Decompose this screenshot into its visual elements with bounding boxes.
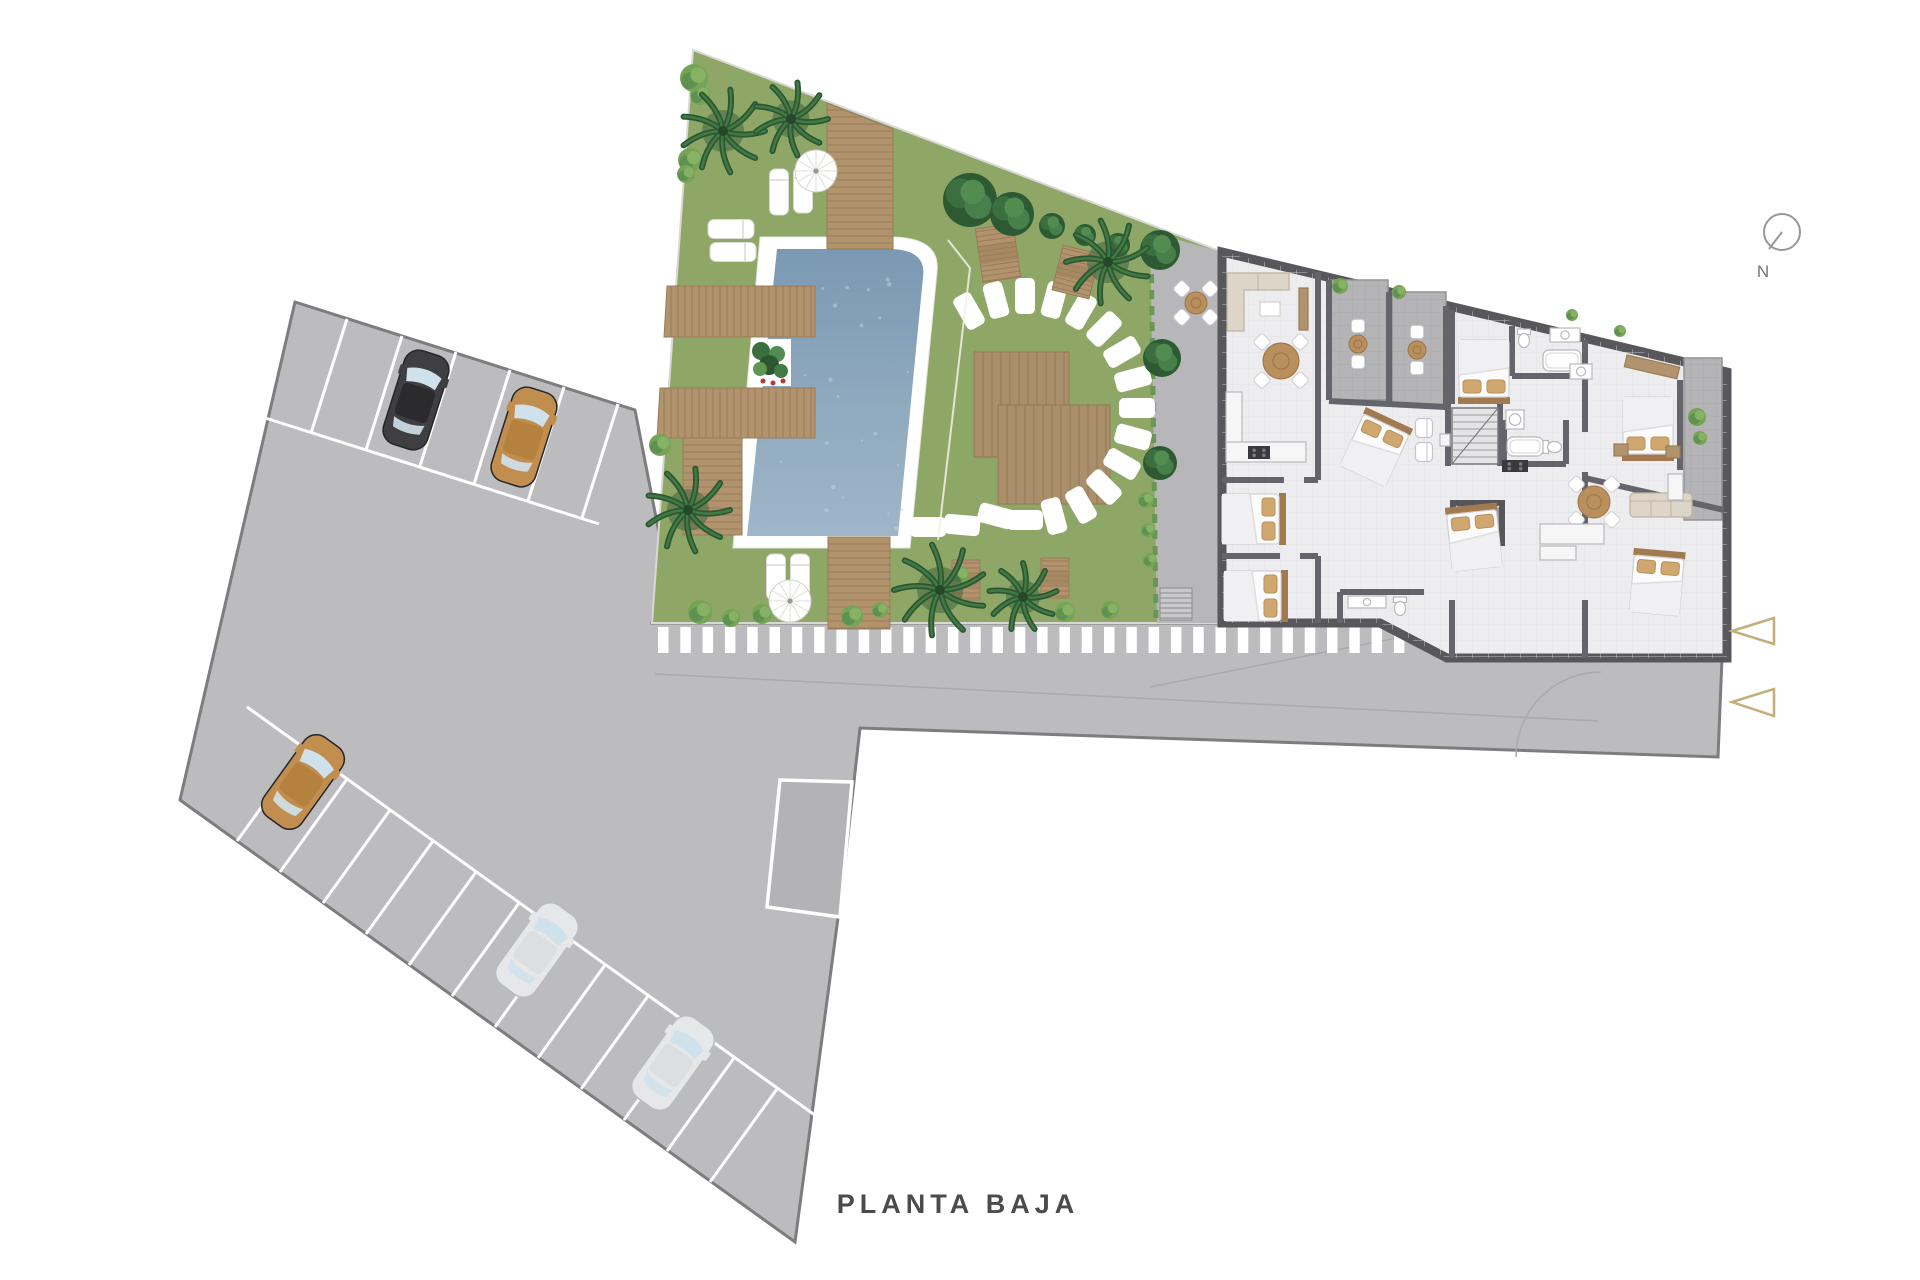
desk [1668,474,1683,500]
double-bed [1224,570,1288,622]
parasol [795,150,837,192]
nightstand [1666,446,1680,458]
sun-lounger [770,169,789,215]
toilet [1394,597,1407,616]
counter [1440,434,1450,446]
washer [1506,410,1524,429]
washbasin [1550,328,1580,342]
north-compass: N [1757,214,1800,281]
pool-planter [751,339,791,386]
washbasin [1570,364,1592,379]
kitchen-island [1540,546,1576,560]
terrace-bistro [1408,326,1426,375]
sun-lounger [710,243,756,262]
tree [1143,446,1177,480]
scene-layer [180,50,1774,1242]
floor-plan-page: N PLANTA BAJA [0,0,1920,1280]
parasol [769,580,811,622]
bathtub [1507,437,1543,456]
toilet [1543,441,1562,454]
plaza-steps [1160,588,1192,620]
double-bed [1222,493,1286,545]
bush [1566,309,1578,321]
north-label: N [1757,262,1769,281]
bush [752,604,772,624]
nightstand [1614,444,1628,456]
tv-unit [1299,288,1308,330]
bush [1143,553,1157,567]
tree [990,192,1034,236]
wood-deck [657,388,815,438]
bush [722,609,740,627]
bush [1614,325,1626,337]
staircase [1452,408,1498,464]
bush [1688,408,1706,426]
bush [841,605,863,627]
double-bed [1458,340,1510,404]
armchair [1416,419,1433,438]
washbasin [1348,596,1386,608]
double-bed [1445,502,1503,571]
kitchen-counter [1540,524,1604,544]
armchair [1416,443,1433,462]
bush [1055,602,1075,622]
bush [1392,285,1406,299]
garage-ramp [767,780,852,917]
tree [1143,339,1181,377]
cooktop [1502,460,1528,472]
toilet [1518,329,1531,348]
bush [1138,492,1154,508]
tree [1039,213,1065,239]
plan-title: PLANTA BAJA [837,1189,1080,1219]
bush [677,165,695,183]
bush [872,602,888,618]
terrace-bistro [1349,320,1367,369]
site-plan: N PLANTA BAJA [0,0,1920,1280]
bush [1332,278,1348,294]
wood-deck [664,286,815,337]
cooktop [1248,446,1270,459]
sun-lounger [708,220,754,239]
bush [1693,431,1707,445]
bush [1101,601,1119,619]
bush [1141,523,1155,537]
tree [943,173,997,227]
bush [649,434,671,456]
entrance-arrow [1732,689,1774,716]
bush [688,600,712,624]
double-bed [1628,548,1685,616]
entrance-arrow [1732,618,1774,644]
